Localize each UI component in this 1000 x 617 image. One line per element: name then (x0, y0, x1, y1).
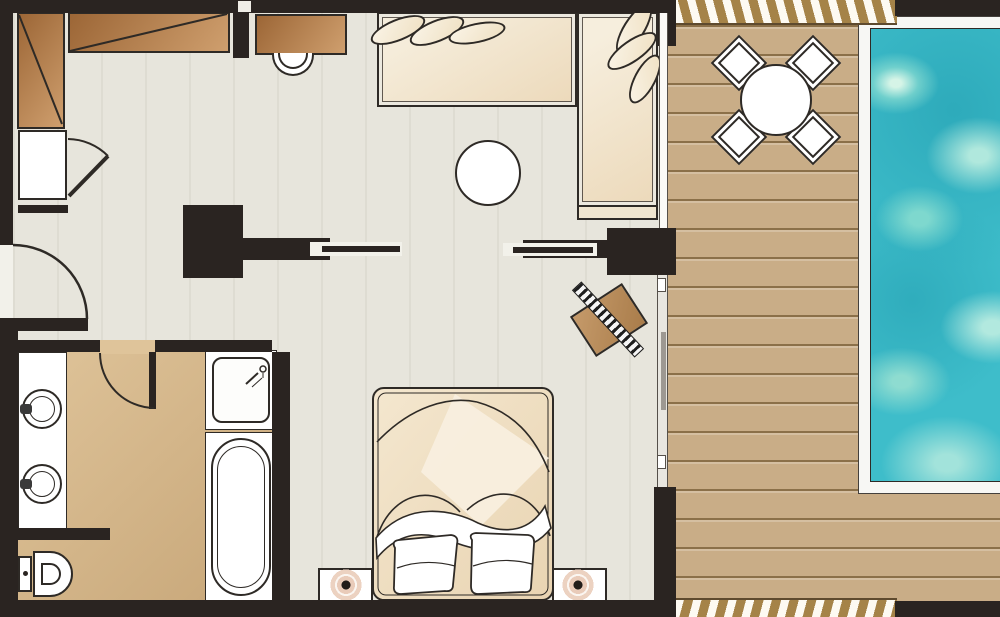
faucet-top (20, 404, 32, 414)
wall-stub-desk (233, 13, 249, 58)
floor-plan (0, 0, 1000, 617)
entrance-door-leaf (13, 318, 88, 331)
outdoor-dining-table (740, 64, 812, 136)
bathroom-wall-top-right (155, 340, 272, 352)
sliding-panel-left (322, 246, 400, 252)
bathroom-doorway-floor (100, 340, 155, 354)
desk (255, 14, 347, 55)
coffee-table (455, 140, 521, 206)
tv-wall-left-block (183, 205, 243, 278)
sliding-door-handle-top (657, 278, 666, 292)
sliding-door-handle-bottom (657, 455, 666, 469)
minibar-cabinet (18, 130, 67, 200)
window-wall (659, 13, 668, 228)
sliding-glass-door-panel (661, 332, 666, 410)
washbasin-bottom-inner (29, 471, 55, 497)
shower-tray (212, 357, 270, 423)
toilet-flush-dot (23, 571, 28, 576)
wardrobe-left-section (17, 12, 65, 129)
sofa-armrest-cap (577, 205, 658, 220)
entry-doorway (0, 245, 13, 318)
washbasin-top-inner (29, 396, 55, 422)
deck-edge-hatch-top (658, 0, 897, 25)
wall-left-lower (0, 318, 18, 617)
double-bed (363, 380, 563, 604)
table-lamp-right (561, 568, 595, 602)
window-notch (238, 1, 251, 12)
tv-wall-right-block (607, 228, 676, 275)
bathroom-wall-right (272, 352, 290, 603)
bathroom-door-leaf (149, 352, 156, 409)
vanity-wall-stub (18, 528, 110, 540)
faucet-bottom (20, 479, 32, 489)
bathroom-wall-top-left (13, 340, 100, 352)
wall-bottom (0, 600, 676, 617)
wardrobe-top-section (68, 12, 230, 53)
wall-left-upper (0, 13, 13, 245)
pool-water (870, 28, 1000, 482)
bathtub-inner (217, 446, 265, 588)
wall-bottom-right-corner (895, 601, 1000, 617)
wall-top-right-corner (895, 0, 1000, 16)
sliding-panel-right (513, 247, 593, 253)
entry-wall-stub (18, 205, 68, 213)
table-lamp-left (329, 568, 363, 602)
deck-edge-hatch-bottom (658, 598, 897, 617)
wall-right-lower (654, 487, 676, 603)
wall-top (0, 0, 676, 13)
